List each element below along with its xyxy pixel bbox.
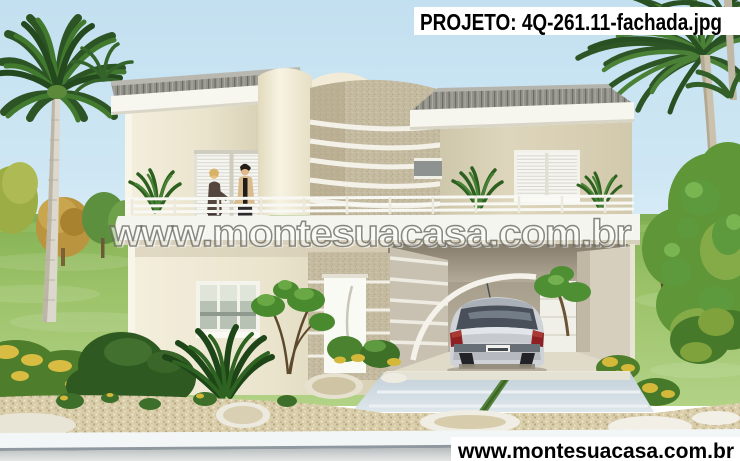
svg-text:www.montesuacasa.com.br: www.montesuacasa.com.br — [108, 213, 631, 255]
svg-text:www.montesuacasa.com.br: www.montesuacasa.com.br — [457, 440, 734, 461]
svg-text:PROJETO: 4Q-261.11-fachada.jpg: PROJETO: 4Q-261.11-fachada.jpg — [420, 9, 722, 35]
